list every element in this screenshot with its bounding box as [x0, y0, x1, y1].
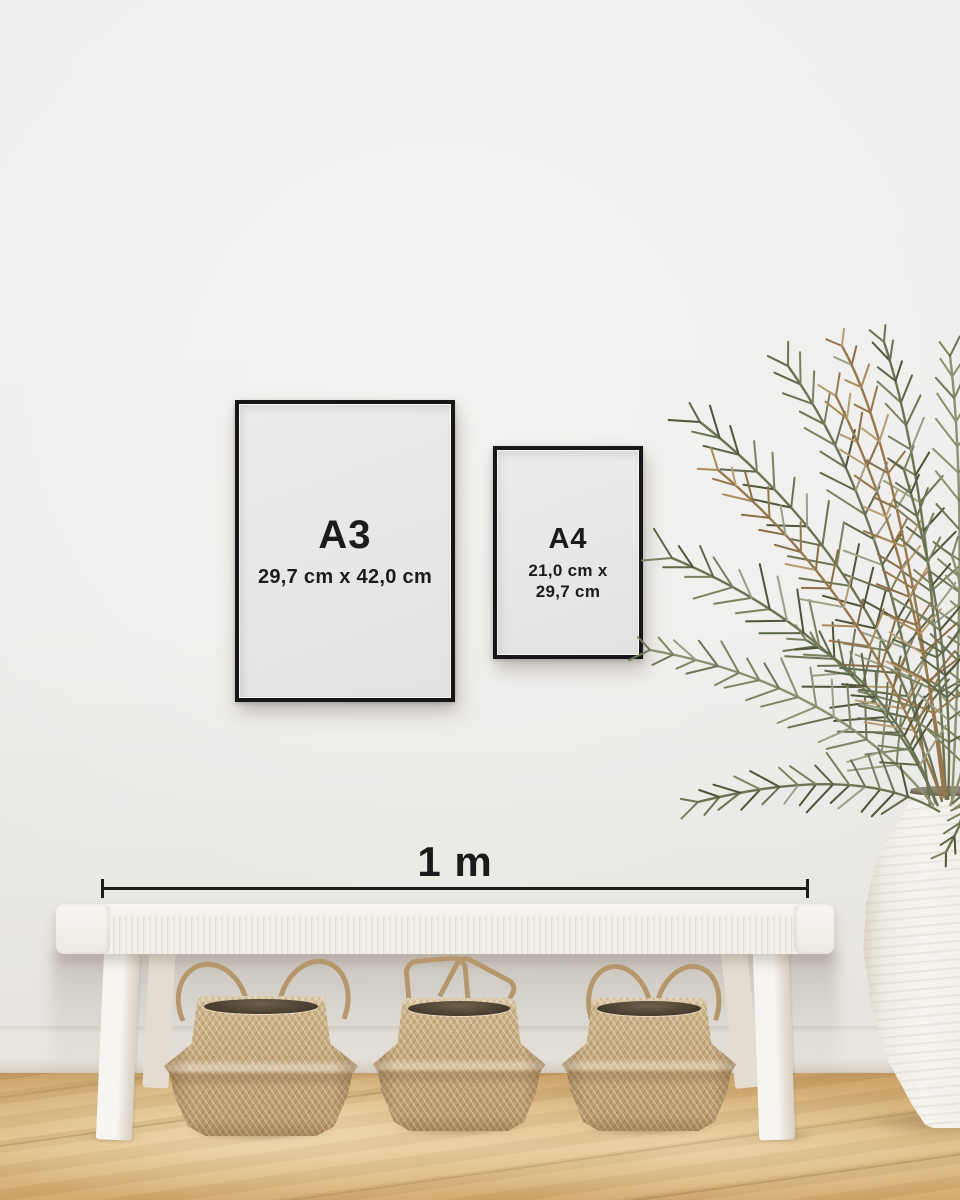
seagrass-basket — [162, 996, 360, 1136]
basket-opening — [408, 1001, 510, 1016]
basket-opening — [597, 1001, 700, 1016]
seagrass-basket — [560, 998, 738, 1131]
scale-line — [102, 887, 808, 890]
seagrass-basket — [371, 998, 547, 1131]
bench-seat-end-cap — [56, 904, 110, 954]
room-scene: A3 29,7 cm x 42,0 cm A4 21,0 cm x 29,7 c… — [0, 0, 960, 1200]
vase-mouth — [906, 786, 960, 796]
basket-body — [371, 998, 547, 1131]
scale-tick-left — [101, 879, 104, 898]
bench-seat-end-cap — [794, 904, 834, 954]
basket-opening — [204, 999, 319, 1014]
bench-leg-front-right — [753, 947, 796, 1140]
scale-tick-right — [806, 879, 809, 898]
bench-seat — [56, 904, 834, 954]
scale-label: 1 m — [417, 838, 492, 886]
